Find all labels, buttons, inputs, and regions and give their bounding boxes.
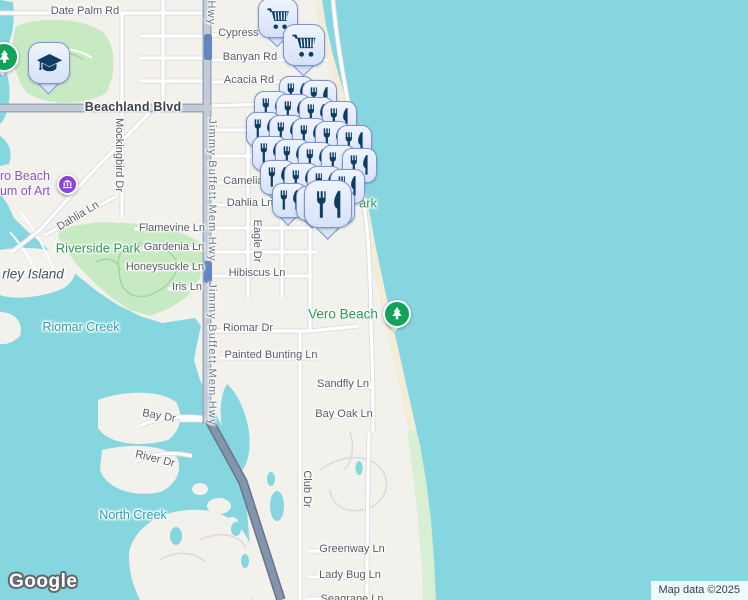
road-label: Acacia Rd — [224, 74, 274, 86]
route-shield — [204, 261, 212, 283]
road-label: Banyan Rd — [223, 51, 277, 63]
park-pin[interactable] — [0, 42, 15, 68]
school-marker[interactable] — [28, 42, 68, 82]
museum-pin[interactable] — [57, 174, 74, 191]
cart-icon — [283, 24, 325, 66]
road-label: Club Dr — [301, 470, 313, 507]
park-pin[interactable] — [383, 300, 407, 324]
google-logo: Google — [9, 571, 77, 593]
road-label: Iris Ln — [172, 281, 202, 293]
road-label: Riomar Dr — [223, 322, 273, 334]
fork-knife-icon — [304, 180, 352, 228]
road-label: Painted Bunting Ln — [225, 349, 318, 361]
museum-label-line2: Museum of Art — [0, 184, 50, 199]
map-attribution: Map data ©2025 — [651, 581, 748, 600]
highway-label: Jimmy Buffett Mem Hwy — [206, 118, 218, 262]
water-label: Riomar Creek — [42, 320, 119, 334]
road-label: Seagrape Ln — [321, 593, 384, 600]
museum-label-line1: Vero Beach — [0, 169, 50, 184]
route-shield — [204, 34, 212, 60]
road-label: Greenway Ln — [319, 543, 384, 555]
park-label: Vero Beach — [308, 307, 378, 322]
park-label: Riverside Park — [56, 241, 141, 256]
road-label: Eagle Dr — [251, 220, 263, 263]
road-label: Flamevine Ln — [139, 222, 205, 234]
museum-icon — [57, 174, 78, 195]
highway-label: Hwy — [205, 1, 217, 26]
road-label: Date Palm Rd — [51, 5, 119, 17]
tree-icon — [383, 300, 411, 328]
road-label: Dahlia Ln — [227, 197, 273, 209]
road-label: Lady Bug Ln — [319, 569, 381, 581]
graduation-cap-icon — [28, 42, 70, 84]
map-canvas[interactable]: Vero Beach Museum of Art Date Palm RdCyp… — [0, 0, 748, 600]
road-label: Beachland Blvd — [85, 100, 182, 114]
water-label: North Creek — [99, 508, 166, 522]
restaurant-marker[interactable] — [304, 180, 350, 226]
road-label: Hibiscus Ln — [229, 267, 286, 279]
highway-label: Jimmy Buffett Mem Hwy — [206, 282, 218, 426]
road-label: Gardenia Ln — [144, 241, 205, 253]
road-label: Sandfly Ln — [317, 378, 369, 390]
road-label: Bay Oak Ln — [315, 408, 372, 420]
island-label: rley Island — [2, 267, 64, 282]
shopping-cart-marker[interactable] — [283, 24, 323, 64]
road-label: Mockingbird Dr — [113, 118, 125, 192]
museum-label: Vero Beach Museum of Art — [0, 169, 50, 199]
road-label: Honeysuckle Ln — [126, 261, 204, 273]
